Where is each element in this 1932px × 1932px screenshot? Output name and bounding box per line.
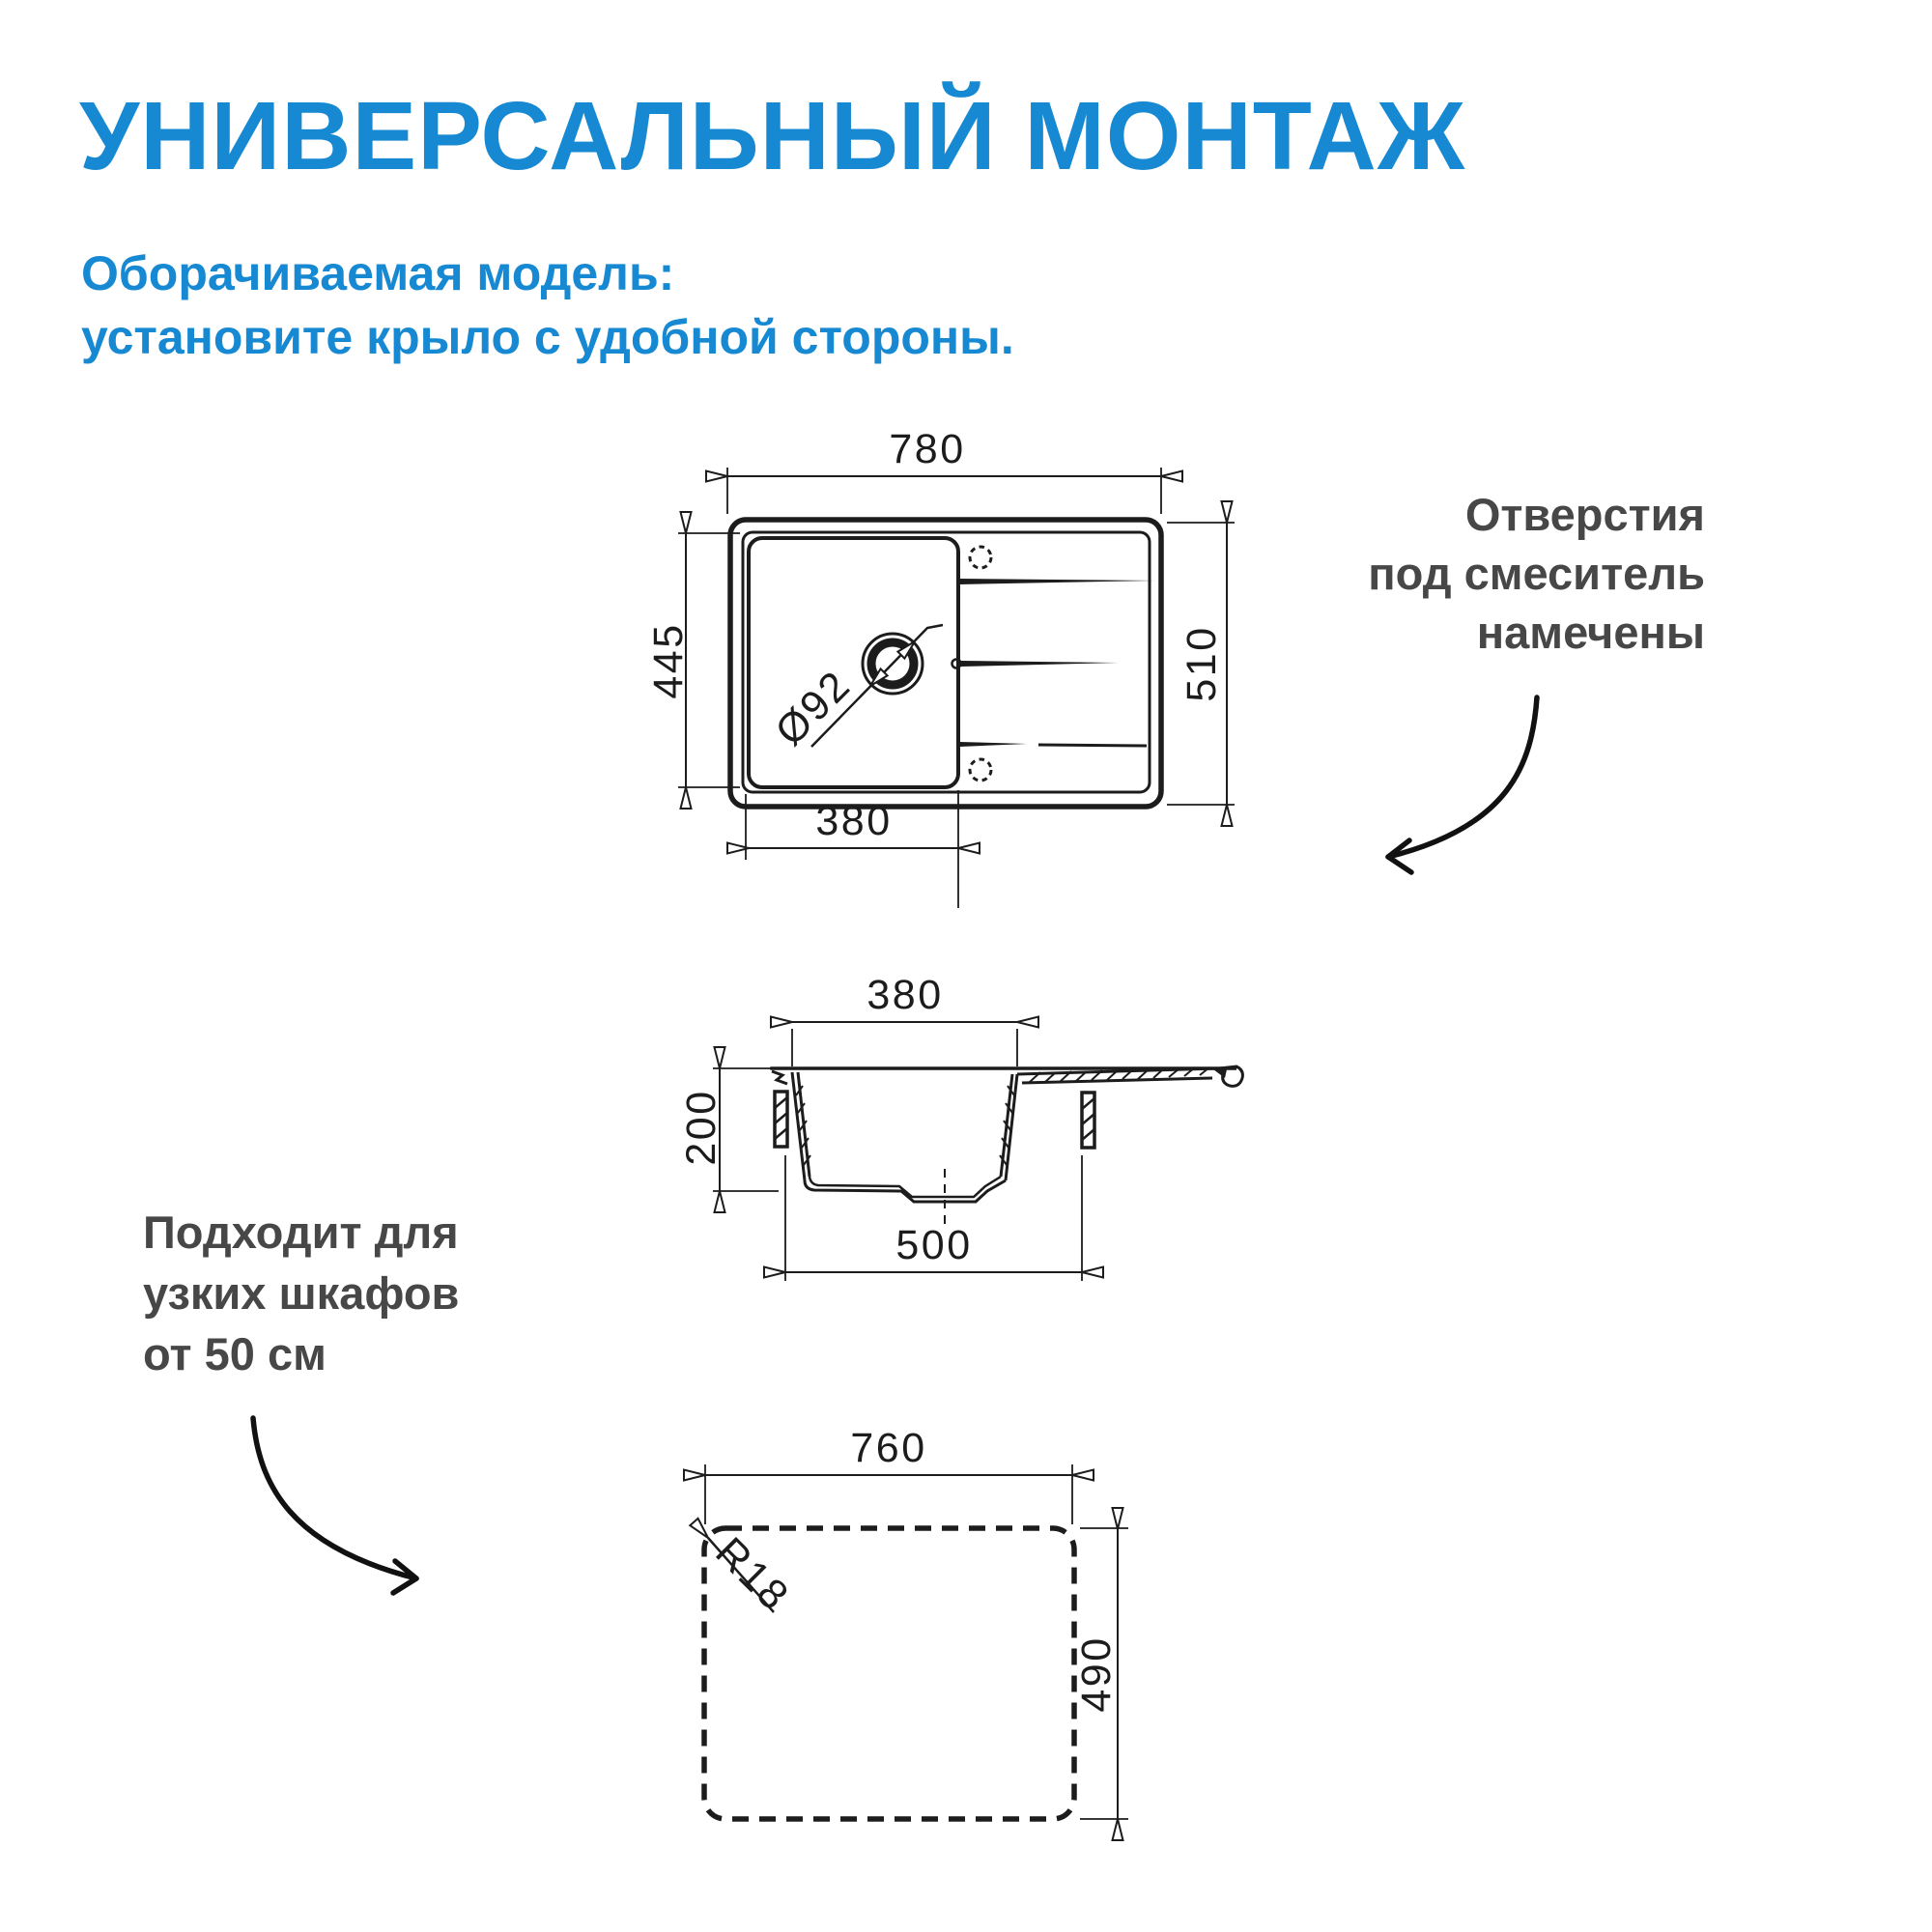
dim-200-label: 200: [678, 1089, 724, 1165]
dim-380s-label: 380: [867, 972, 943, 1018]
sink-inner-rim: [743, 532, 1150, 792]
dim-780-extensions: [727, 468, 1161, 514]
dim-490-label: 490: [1073, 1635, 1120, 1712]
dim-760-label: 760: [850, 1425, 926, 1471]
drain-diameter-label: Ø92: [767, 662, 861, 755]
clip-left-hatch: [775, 1097, 787, 1139]
drainboard-groove-2: [961, 661, 1119, 667]
infographic-page: УНИВЕРСАЛЬНЫЙ МОНТАЖ Оборачиваемая модел…: [0, 0, 1932, 1932]
drainboard-groove-3a: [959, 742, 1027, 747]
dim-380tv-label: 380: [815, 798, 892, 844]
dim-510-label: 510: [1179, 625, 1225, 701]
faucet-hole-bottom: [970, 759, 991, 781]
clip-right-hatch: [1082, 1098, 1094, 1140]
cutout-view-drawing: 760 490 R18: [704, 1425, 1128, 1819]
top-view-drawing: Ø92 780 510 445 380: [645, 426, 1235, 908]
dim-380s-extensions: [792, 1029, 1017, 1066]
faucet-note-arrow: [1388, 697, 1537, 857]
dim-500-label: 500: [895, 1222, 972, 1268]
cabinet-note-arrow: [253, 1418, 416, 1578]
left-edge-lip: [770, 1068, 794, 1084]
faucet-hole-top: [970, 547, 991, 568]
dim-760-extensions: [705, 1464, 1072, 1524]
dim-780-label: 780: [889, 426, 965, 472]
right-edge-notch: [1213, 1069, 1227, 1078]
technical-drawing: Ø92 780 510 445 380: [0, 0, 1932, 1932]
section-view-drawing: 380 200 500: [678, 972, 1242, 1281]
dim-445-label: 445: [645, 622, 692, 698]
drainboard-groove-3b: [1038, 745, 1147, 746]
drainboard-groove-1: [959, 579, 1156, 584]
radius-label: R18: [706, 1528, 798, 1620]
bowl-outline: [749, 538, 958, 787]
